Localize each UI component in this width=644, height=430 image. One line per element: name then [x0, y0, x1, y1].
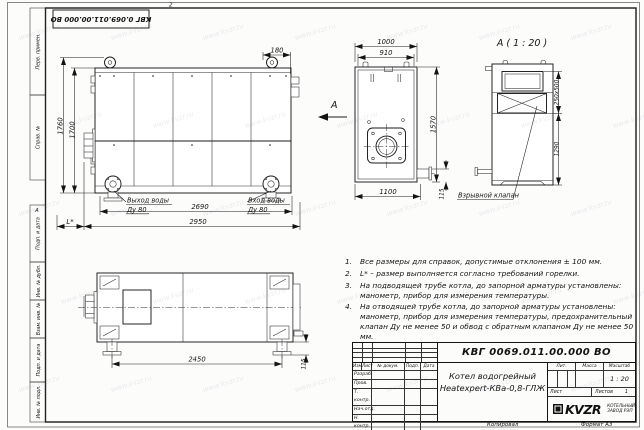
notes-list: 1. Все размеры для справок, допустимые о… — [345, 257, 637, 344]
margin-label: Справ. № — [35, 126, 41, 149]
mass-label: Масса — [576, 363, 604, 370]
note-item: 2. L* – размер выполняется согласно треб… — [345, 269, 637, 279]
detail-title: А ( 1 : 20 ) — [496, 38, 547, 49]
detail-view-a: А ( 1 : 20 ) 250x500 1290 Взрывной клапа… — [457, 38, 562, 200]
plan-view: 2450 115 — [78, 273, 309, 370]
note-number: 2. — [345, 269, 360, 279]
signature-row: Пров. — [353, 380, 437, 389]
signature-table: Изм Лист № докум. Подп. Дата Разраб. Про… — [353, 363, 438, 422]
front-view: 1000 910 1570 1100 115 — [355, 38, 449, 200]
note-number: 3. — [345, 281, 360, 301]
logo-text: KVZR — [565, 402, 601, 417]
drawing-sheet: Перв. примен. Справ. № Подп. и дата Инв.… — [0, 0, 644, 430]
margin-label: Перв. примен. — [35, 33, 41, 69]
sheets-label: Листов — [592, 388, 613, 396]
scale-value: 1 : 20 — [604, 371, 635, 387]
copied-label: Копировал — [487, 422, 518, 428]
title-block-right: Лит. Масса Масштаб 1 : 20 Лист Листов 1 … — [548, 363, 635, 422]
margin-label: Подп. и дата — [36, 344, 42, 377]
dim-1700: 1700 — [69, 121, 77, 138]
view-letter: А — [330, 100, 338, 111]
title-block: КВГ 0069.011.00.000 ВО Изм Лист № докум.… — [352, 342, 636, 422]
signature-row: Нач.отд. — [353, 406, 437, 415]
dim-2450: 2450 — [188, 356, 205, 364]
col-izm: Изм — [353, 363, 362, 370]
dim-115-plan: 115 — [302, 358, 308, 369]
signature-row: Т. контр. — [353, 389, 437, 406]
dim-250x500: 250x500 — [555, 79, 561, 105]
change-table — [353, 343, 438, 363]
margin-label: Инв. № подл. — [36, 385, 42, 418]
sheet-label: Лист — [548, 388, 592, 396]
company-name: КОТЕЛЬНЫЙ ЗАВОД РЭП — [607, 404, 635, 416]
margin-label: Подп. и дата — [35, 217, 41, 250]
signature-row: Н. контр. — [353, 415, 437, 430]
margin-label: Инв. № дубл. — [36, 265, 42, 298]
lit-cells — [548, 371, 576, 387]
dim-2690: 2690 — [191, 203, 208, 211]
valve-label: Взрывной клапан — [458, 192, 520, 200]
product-name: Котел водогрейный Heatexpert-КВа-0,8-ГЛЖ — [438, 363, 548, 422]
col-list: Лист — [362, 363, 372, 370]
note-text: L* – размер выполняется согласно требова… — [360, 269, 637, 279]
dim-1100: 1100 — [379, 188, 396, 196]
company-logo: KVZR КОТЕЛЬНЫЙ ЗАВОД РЭП — [548, 397, 635, 422]
dim-180: 180 — [271, 47, 284, 55]
note-text: На отводящей трубе котла, до запорной ар… — [360, 302, 637, 341]
col-podp: Подп. — [405, 363, 421, 370]
note-item: 3. На подводящей трубе котла, до запорно… — [345, 281, 637, 301]
dim-1290: 1290 — [555, 141, 561, 156]
mass-cell — [576, 371, 604, 387]
note-number: 4. — [345, 302, 360, 341]
note-text: На подводящей трубе котла, до запорной а… — [360, 281, 637, 301]
view-arrow-icon — [318, 113, 328, 121]
scale-label: Масштаб — [604, 363, 635, 370]
outlet-dn: Ду 80 — [126, 206, 147, 214]
sheets-value: 1 — [625, 388, 628, 396]
dim-1000: 1000 — [377, 38, 394, 46]
dim-115-front: 115 — [440, 188, 446, 199]
format-label: Формат А3 — [581, 422, 612, 428]
dim-2950: 2950 — [189, 218, 206, 226]
logo-mark-icon — [553, 404, 563, 414]
outlet-label: Выход воды — [127, 197, 169, 205]
top-inverted-stamp: КВГ 0.069.011.00.000 ВО — [51, 15, 152, 23]
dim-1760: 1760 — [57, 117, 65, 134]
note-text: Все размеры для справок, допустимые откл… — [360, 257, 637, 267]
lit-label: Лит. — [548, 363, 576, 370]
dim-1570: 1570 — [430, 116, 438, 133]
signature-header: Изм Лист № докум. Подп. Дата — [353, 363, 437, 371]
drawing-designation: КВГ 0069.011.00.000 ВО — [438, 343, 635, 363]
margin-label: Взам. инв. № — [36, 303, 42, 336]
note-item: 1. Все размеры для справок, допустимые о… — [345, 257, 637, 267]
zone-mark-left: А — [34, 208, 39, 214]
side-view: 180 1760 1700 2690 L* 2950 Выход воды Ду… — [57, 47, 348, 231]
inlet-dn: Ду 80 — [247, 206, 268, 214]
note-item: 4. На отводящей трубе котла, до запорной… — [345, 302, 637, 341]
dim-910: 910 — [380, 49, 393, 57]
note-number: 1. — [345, 257, 360, 267]
zone-mark-top: 2 — [169, 3, 173, 9]
dim-L: L* — [66, 218, 74, 226]
inlet-label: Вход воды — [248, 197, 285, 205]
col-data: Дата — [421, 363, 437, 370]
product-name-line2: Heatexpert-КВа-0,8-ГЛЖ — [438, 382, 547, 394]
col-docnum: № докум. — [372, 363, 405, 370]
product-name-line1: Котел водогрейный — [438, 370, 547, 382]
signature-row: Разраб. — [353, 371, 437, 380]
